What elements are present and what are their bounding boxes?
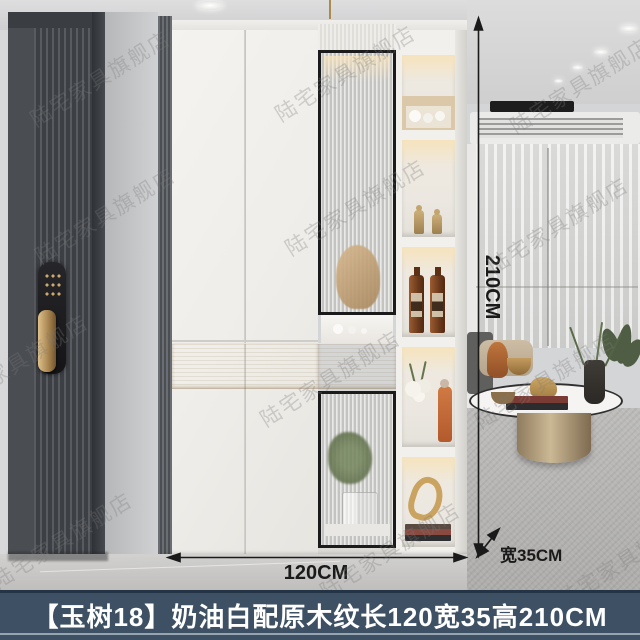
fluted-wall-panel — [158, 16, 172, 558]
door-frame-post — [92, 12, 105, 560]
smart-lock-handle — [38, 310, 56, 372]
book-stack — [405, 524, 451, 541]
caption-bar: 【玉树18】奶油白配原木纹长120宽35高210CM — [0, 590, 640, 640]
display-shelf-5 — [402, 457, 455, 547]
window-mullion — [547, 148, 549, 346]
wood-drawer-front — [318, 343, 396, 389]
cabinet-interior-light — [324, 56, 390, 82]
cabinet-door-seam — [172, 340, 318, 342]
smart-lock-keypad-icon — [44, 272, 61, 306]
wall-between-door-and-cabinet — [105, 12, 158, 558]
recessed-light-icon — [572, 65, 583, 70]
caption-divider — [0, 633, 640, 635]
amber-decanter — [487, 342, 508, 378]
recessed-light-icon — [594, 49, 608, 55]
height-dimension-label: 210CM — [481, 252, 503, 322]
gold-figurine — [414, 210, 424, 234]
wood-accent-band — [172, 343, 318, 389]
glass-vases-decor — [342, 492, 378, 526]
marble-counter — [324, 524, 390, 536]
plant-behind-glass — [328, 432, 372, 484]
depth-dimension-label: 宽35CM — [500, 541, 562, 566]
liquor-bottle — [430, 275, 445, 333]
liquor-bottle — [409, 275, 424, 333]
coffee-table-books — [506, 396, 568, 410]
gold-figurine — [432, 214, 442, 234]
recessed-light-icon — [196, 1, 224, 10]
recessed-light-icon — [620, 25, 638, 32]
display-shelf-3 — [402, 247, 455, 337]
display-shelf-2 — [402, 140, 455, 237]
room-ceiling — [467, 0, 640, 104]
cabinet-door-seam — [244, 30, 246, 557]
product-image: 210CM 120CM 宽35CM 陆宅家具旗舰店陆宅家具旗舰店陆宅家具旗舰店陆… — [0, 0, 640, 640]
gold-sculpture-decor — [336, 245, 380, 309]
glassware-decor — [406, 106, 451, 128]
ac-vent-grille — [479, 118, 623, 138]
ceiling-shadow-gap — [490, 101, 574, 112]
dark-vase — [584, 360, 605, 404]
door-floor-shadow — [8, 552, 108, 561]
cabinet-side-panel — [455, 30, 467, 557]
recessed-light-icon — [554, 79, 563, 83]
display-shelf-4 — [402, 347, 455, 447]
caption-text: 【玉树18】奶油白配原木纹长120宽35高210CM — [0, 597, 640, 634]
niche-decor-items — [330, 322, 374, 336]
pendant-wire — [329, 0, 331, 19]
orange-figurine — [438, 386, 452, 442]
gold-abstract-sculpture — [404, 473, 448, 525]
coffee-table-base — [517, 413, 591, 463]
white-flowers-decor — [404, 377, 434, 403]
display-shelf-1 — [402, 55, 455, 130]
width-dimension-label: 120CM — [266, 562, 366, 585]
cabinet-middle-top-panel — [318, 24, 396, 52]
